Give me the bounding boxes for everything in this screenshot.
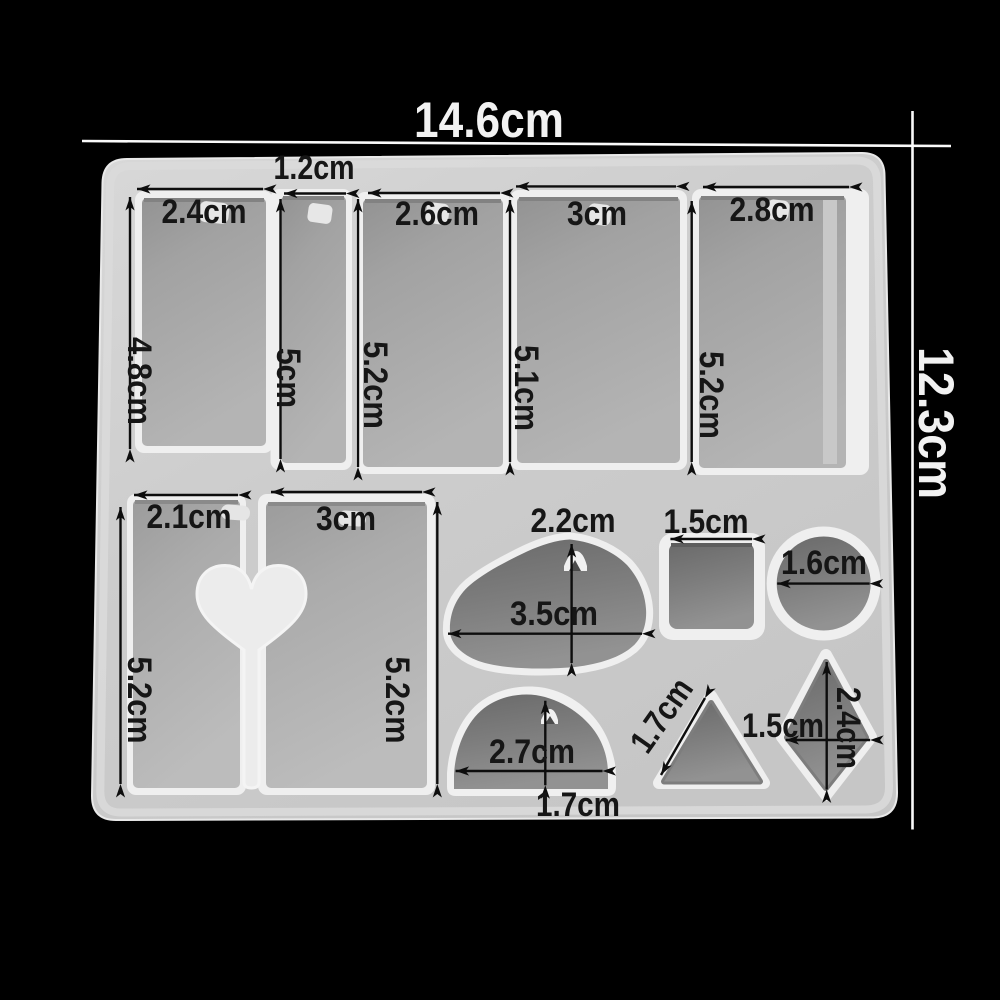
svg-text:14.6cm: 14.6cm <box>414 92 564 148</box>
svg-text:2.2cm: 2.2cm <box>531 502 616 540</box>
svg-text:3cm: 3cm <box>316 500 376 538</box>
svg-text:2.7cm: 2.7cm <box>489 733 575 771</box>
svg-text:5.2cm: 5.2cm <box>120 657 158 744</box>
svg-text:12.3cm: 12.3cm <box>908 347 964 499</box>
svg-text:2.8cm: 2.8cm <box>730 191 815 229</box>
svg-text:5cm: 5cm <box>269 348 307 408</box>
svg-text:1.5cm: 1.5cm <box>742 707 824 745</box>
svg-text:4.8cm: 4.8cm <box>120 337 158 425</box>
svg-text:2.6cm: 2.6cm <box>395 195 479 233</box>
svg-text:1.6cm: 1.6cm <box>781 544 867 582</box>
svg-text:5.2cm: 5.2cm <box>356 341 394 429</box>
svg-text:1.5cm: 1.5cm <box>664 503 749 541</box>
svg-text:2.4cm: 2.4cm <box>162 193 247 231</box>
svg-text:1.2cm: 1.2cm <box>274 149 355 187</box>
svg-text:5.2cm: 5.2cm <box>378 657 416 744</box>
svg-text:5.1cm: 5.1cm <box>507 345 545 431</box>
svg-text:5.2cm: 5.2cm <box>692 351 730 439</box>
svg-text:1.7cm: 1.7cm <box>536 786 620 824</box>
svg-text:2.4cm: 2.4cm <box>829 687 867 769</box>
svg-text:2.1cm: 2.1cm <box>147 498 232 536</box>
svg-text:3cm: 3cm <box>567 195 627 233</box>
svg-text:3.5cm: 3.5cm <box>510 595 598 633</box>
